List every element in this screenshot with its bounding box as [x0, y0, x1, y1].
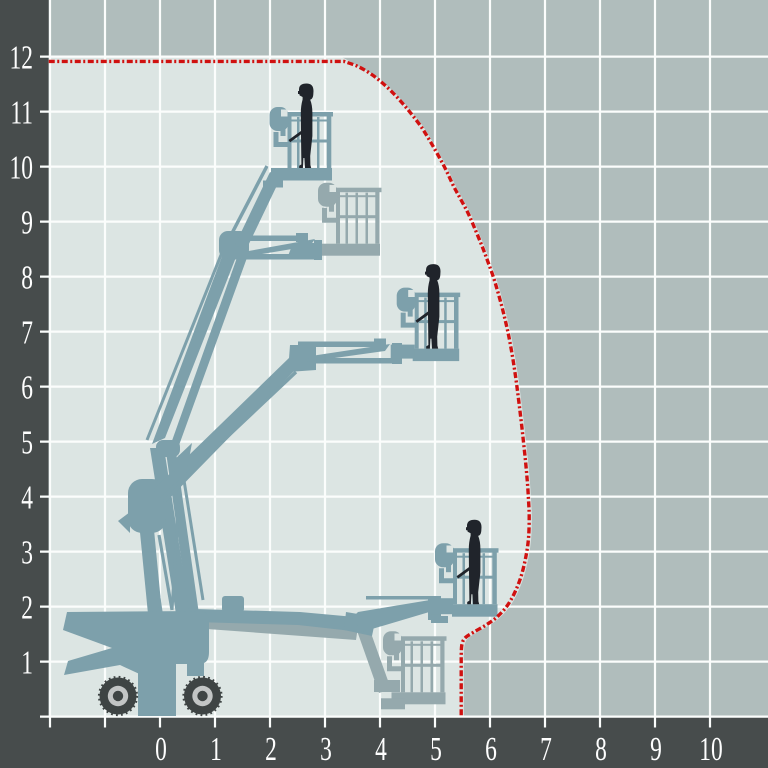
svg-text:2: 2	[265, 731, 277, 768]
svg-text:10: 10	[699, 731, 722, 768]
svg-text:9: 9	[21, 205, 33, 242]
svg-text:1: 1	[210, 731, 222, 768]
svg-text:7: 7	[21, 315, 33, 352]
svg-text:6: 6	[485, 731, 497, 768]
svg-text:4: 4	[21, 480, 33, 517]
svg-text:11: 11	[10, 95, 33, 132]
svg-text:8: 8	[595, 731, 607, 768]
svg-text:6: 6	[21, 370, 33, 407]
svg-text:5: 5	[21, 425, 33, 462]
svg-text:5: 5	[430, 731, 442, 768]
svg-text:3: 3	[21, 535, 33, 572]
svg-text:8: 8	[21, 260, 33, 297]
svg-text:7: 7	[540, 731, 552, 768]
svg-text:3: 3	[320, 731, 332, 768]
svg-text:10: 10	[10, 150, 33, 187]
svg-text:1: 1	[21, 645, 33, 682]
svg-text:0: 0	[155, 731, 167, 768]
svg-text:9: 9	[650, 731, 662, 768]
svg-text:2: 2	[21, 590, 33, 627]
svg-text:4: 4	[375, 731, 387, 768]
svg-text:12: 12	[10, 40, 33, 77]
